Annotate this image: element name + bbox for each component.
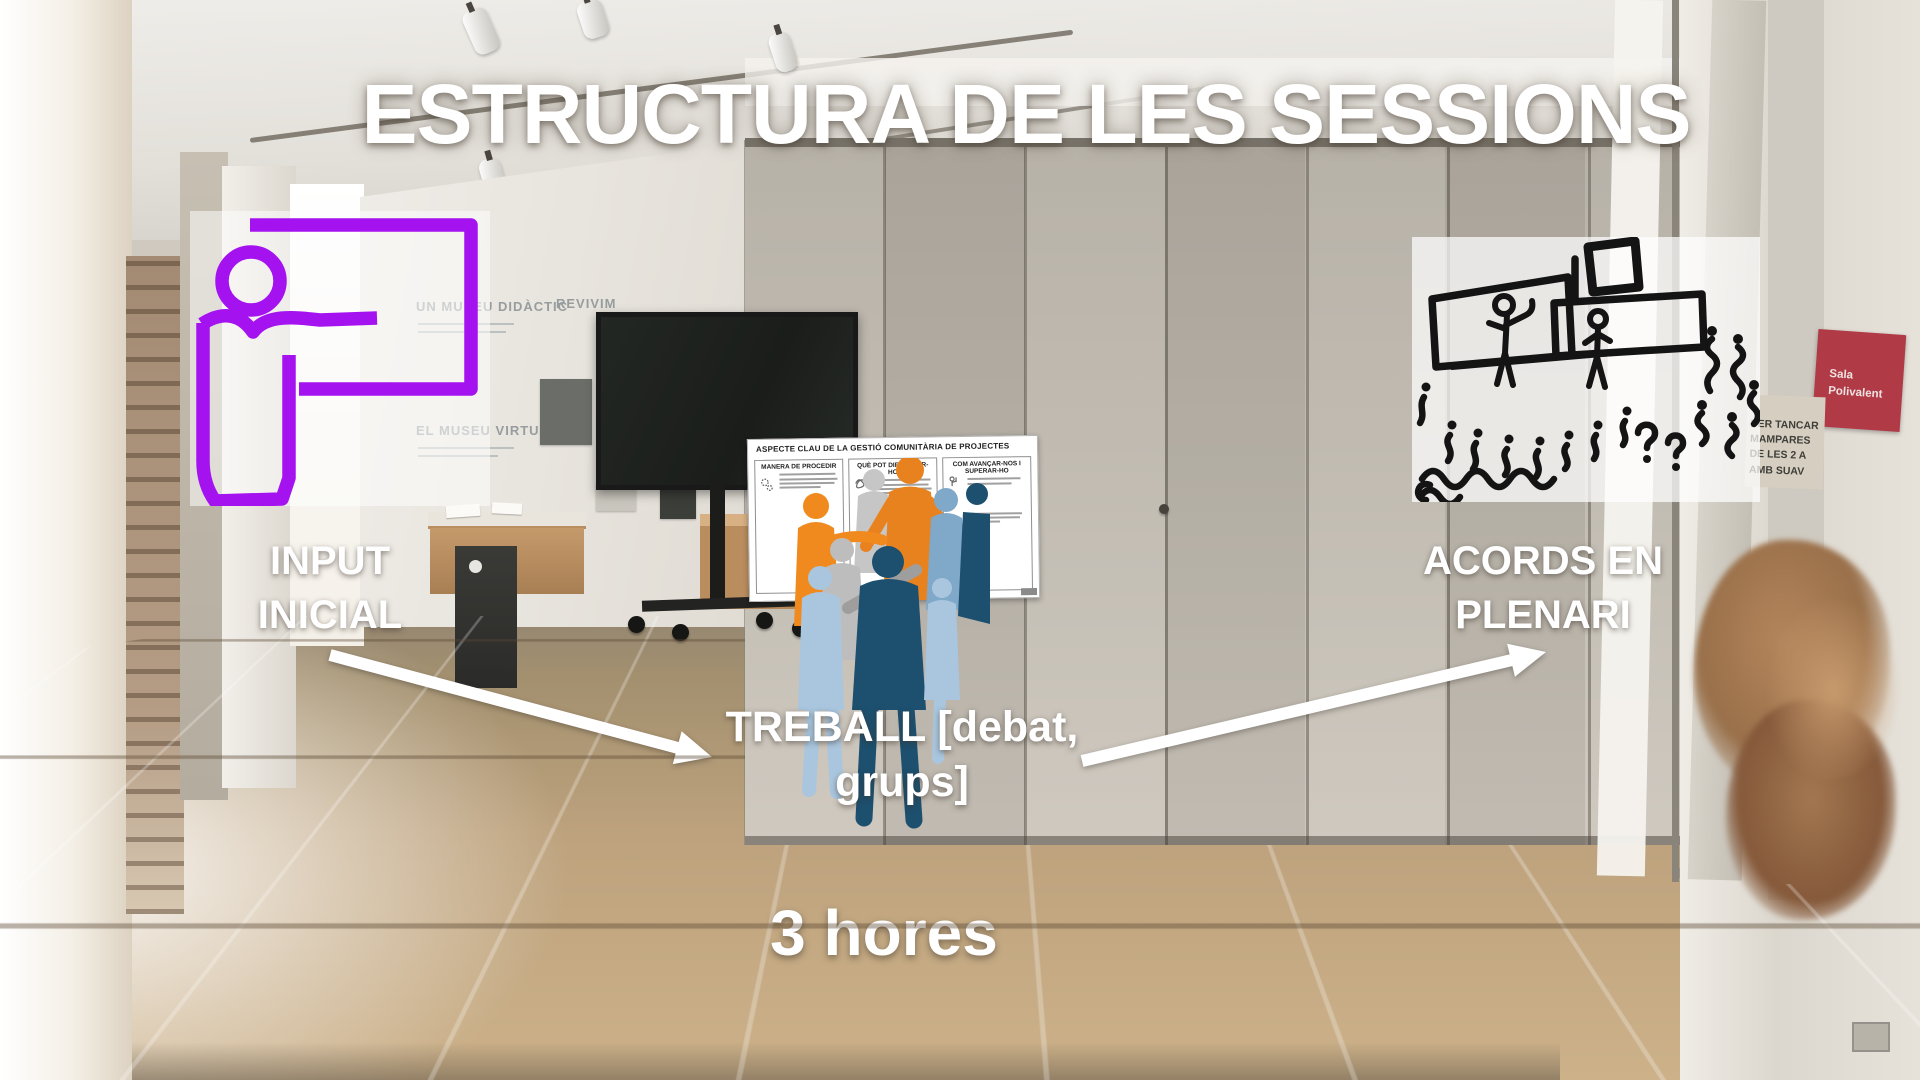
sketch-presenters <box>1489 296 1610 387</box>
step-acords-label: ACORDS EN PLENARI <box>1393 534 1693 642</box>
room-sign: Sala Polivalent <box>1812 329 1907 432</box>
gear-icon <box>758 477 774 493</box>
power-outlet <box>1852 1022 1890 1052</box>
plenary-sketch <box>1412 237 1760 502</box>
exhibit-heading: REVIVIM <box>556 296 616 311</box>
floor-shadow <box>0 1042 1560 1080</box>
tv-stand-pole <box>710 480 725 602</box>
brick-column <box>126 256 184 914</box>
label-line: TREBALL [debat, <box>722 700 1082 755</box>
label-line: PLENARI <box>1393 588 1693 642</box>
step-input-label: INPUT INICIAL <box>205 534 455 642</box>
museum-pedestal <box>455 546 517 688</box>
slide-title: ESTRUCTURA DE LES SESSIONS <box>0 66 1920 163</box>
caster-wheel <box>628 616 645 633</box>
worksheet-footer-tag <box>1021 588 1037 595</box>
duration-label: 3 hores <box>734 896 1034 970</box>
partition-handle <box>1159 504 1169 514</box>
step-input-panel <box>190 211 490 506</box>
label-line: ACORDS EN <box>1393 534 1693 588</box>
label-line: INPUT <box>205 534 455 588</box>
label-line: grups] <box>722 755 1082 810</box>
sketch-boards <box>1432 241 1704 367</box>
exhibit-photo <box>540 379 592 445</box>
step-treball-label: TREBALL [debat, grups] <box>722 700 1082 810</box>
paper-sheet <box>492 502 523 515</box>
caster-wheel <box>756 612 773 629</box>
caster-wheel <box>672 624 689 641</box>
worksheet-title: ASPECTE CLAU DE LA GESTIÓ COMUNITÀRIA DE… <box>756 441 1010 454</box>
label-line: INICIAL <box>205 588 455 642</box>
step-acords-panel <box>1412 237 1760 502</box>
presenter-icon <box>190 211 490 506</box>
slide-canvas: UN MUSEU DIDÀCTIC REVIVIM EL MUSEU VIRTU… <box>0 0 1920 1080</box>
